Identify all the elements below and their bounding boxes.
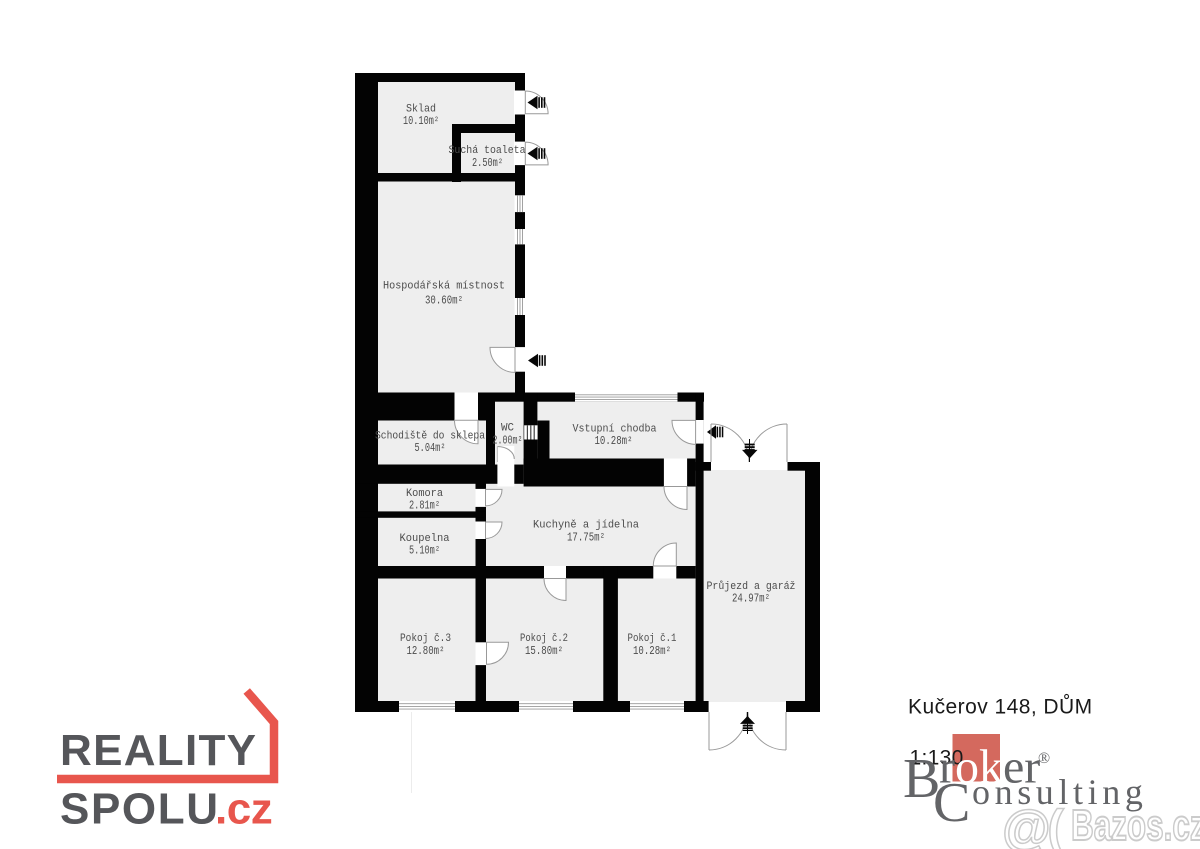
svg-text:Koupelna: Koupelna <box>400 533 450 545</box>
svg-text:Průjezd a garáž: Průjezd a garáž <box>707 580 796 593</box>
svg-text:2.50m²: 2.50m² <box>472 157 503 170</box>
svg-text:12.80m²: 12.80m² <box>407 645 445 658</box>
svg-text:15.80m²: 15.80m² <box>525 645 563 658</box>
svg-text:Suchá toaleta: Suchá toaleta <box>449 145 526 157</box>
svg-text:WC: WC <box>501 423 514 435</box>
svg-text:Sklad: Sklad <box>406 104 436 116</box>
svg-text:5.04m²: 5.04m² <box>415 442 446 455</box>
svg-text:SPOLU: SPOLU <box>60 785 220 834</box>
svg-text:2.81m²: 2.81m² <box>409 500 440 513</box>
svg-text:Hospodářská místnost: Hospodářská místnost <box>383 281 505 293</box>
svg-text:Schodiště do sklepa: Schodiště do sklepa <box>375 431 485 443</box>
svg-text:Pokoj č.3: Pokoj č.3 <box>400 633 451 645</box>
svg-text:Komora: Komora <box>406 488 443 500</box>
svg-text:®: ® <box>1038 750 1050 767</box>
svg-text:24.97m²: 24.97m² <box>732 593 770 606</box>
svg-text:10.10m²: 10.10m² <box>403 115 439 128</box>
svg-text:REALITY: REALITY <box>60 726 257 775</box>
svg-text:17.75m²: 17.75m² <box>567 532 605 545</box>
svg-text:@(: @( <box>1002 800 1064 849</box>
svg-text:.cz: .cz <box>215 785 272 834</box>
svg-text:Pokoj č.2: Pokoj č.2 <box>520 633 568 645</box>
svg-text:Bazos.cz: Bazos.cz <box>1071 801 1200 849</box>
svg-text:5.10m²: 5.10m² <box>409 545 440 558</box>
svg-text:Vstupní chodba: Vstupní chodba <box>573 424 657 436</box>
svg-text:30.60m²: 30.60m² <box>425 295 463 308</box>
svg-text:Pokoj č.1: Pokoj č.1 <box>628 633 677 645</box>
svg-text:10.28m²: 10.28m² <box>595 435 633 448</box>
svg-text:Kučerov 148, DŮM: Kučerov 148, DŮM <box>908 695 1093 719</box>
svg-text:10.28m²: 10.28m² <box>633 645 671 658</box>
svg-text:2.00m²: 2.00m² <box>493 434 523 447</box>
svg-text:Kuchyně a jídelna: Kuchyně a jídelna <box>533 520 639 532</box>
svg-text:C: C <box>933 772 970 834</box>
